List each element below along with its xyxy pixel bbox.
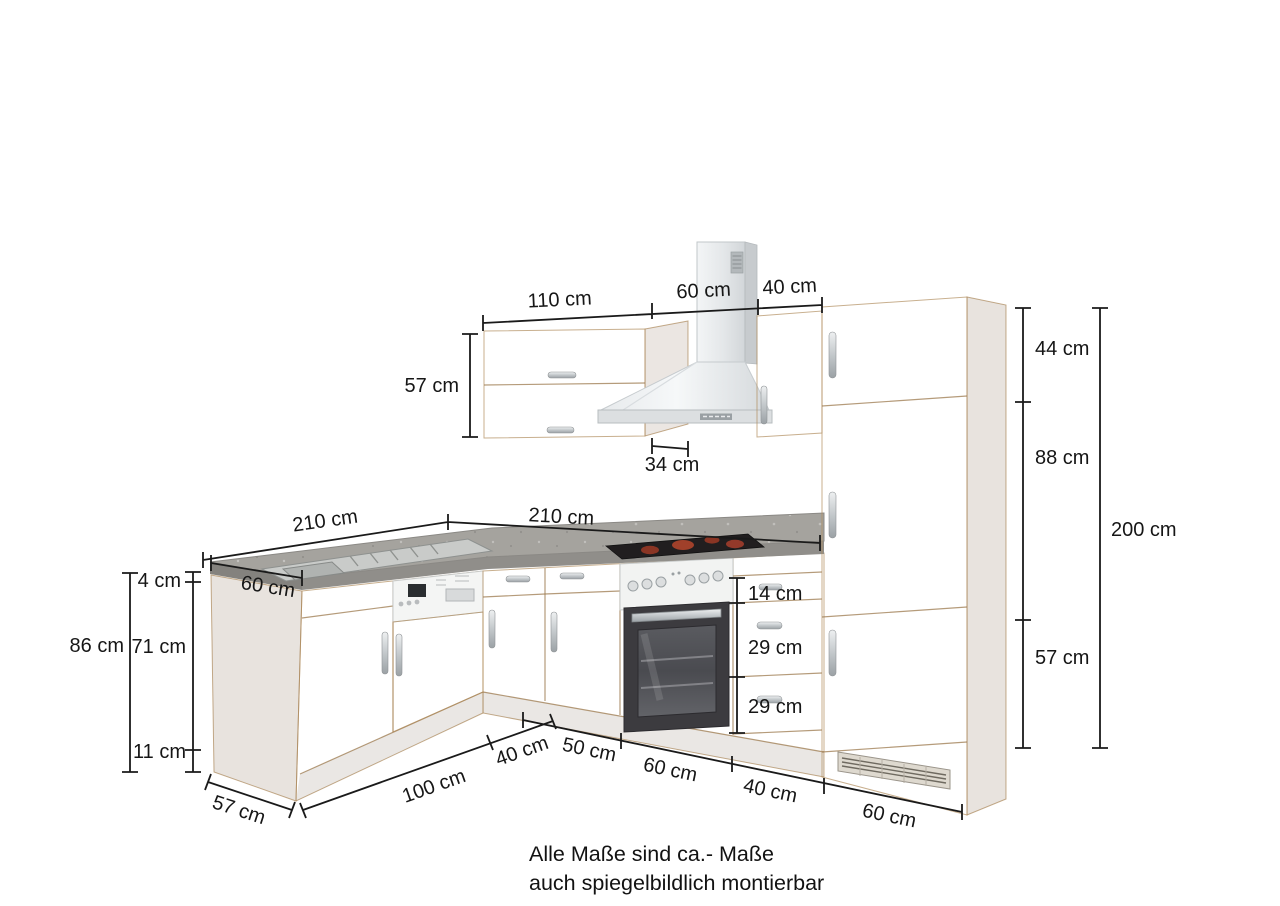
left-run-side-shade (211, 575, 302, 801)
oven (620, 558, 733, 732)
dim-label-wall-depth: 34 cm (645, 454, 699, 476)
dim-label-counter-left: 210 cm (291, 506, 359, 537)
dishwasher-display (408, 584, 426, 597)
dim-label-drawer1: 14 cm (748, 583, 802, 605)
dim-label-worktop-thickness: 4 cm (138, 570, 181, 592)
corner-drawer-handle (506, 576, 530, 582)
hood-base (598, 410, 772, 423)
dim-label-upper40-width: 40 cm (762, 275, 818, 300)
dim-label-bottom-40l: 40 cm (493, 732, 552, 771)
hood-chimney-side (745, 242, 757, 364)
dim-label-plinth-height: 11 cm (133, 741, 186, 763)
dim-label-bottom-40r: 40 cm (741, 775, 799, 808)
tall-door2-handle (829, 492, 836, 538)
dim-label-door-height: 71 cm (132, 636, 186, 658)
dishwasher-handle (396, 634, 402, 676)
dim-left-heights: 86 cm 4 cm 71 cm 11 cm (70, 570, 201, 772)
cab50-door-handle (551, 612, 557, 652)
dim-label-bottom-60a: 60 cm (641, 754, 699, 787)
dim-label-tall-s2: 88 cm (1035, 447, 1089, 469)
footer-line1: Alle Maße sind ca.- Maße (529, 842, 774, 866)
footer-note: Alle Maße sind ca.- Maße auch spiegelbil… (529, 842, 824, 895)
dim-label-bottom-60b: 60 cm (860, 800, 918, 833)
hood-vent-grille (731, 252, 743, 273)
tall-cabinet-front (822, 297, 967, 815)
corner-door-handle (489, 610, 495, 648)
burner (641, 546, 659, 554)
tall-door1-handle (829, 332, 836, 378)
burner (672, 540, 694, 550)
dim-tall-sections: 44 cm 88 cm 57 cm 200 cm (1015, 308, 1177, 748)
cab50-drawer-handle (560, 573, 584, 579)
diagram-canvas: 110 cm 60 cm 40 cm 57 cm 34 cm 44 cm 88 … (0, 0, 1280, 906)
dim-label-tall-s1: 44 cm (1035, 338, 1089, 360)
hood-controls (700, 414, 732, 421)
wall-flap-handle-top (548, 372, 576, 378)
dim-label-wall-height: 57 cm (405, 375, 459, 397)
dim-label-tall-s3: 57 cm (1035, 647, 1089, 669)
burner (726, 540, 744, 548)
dim-label-drawer3: 29 cm (748, 696, 802, 718)
fridge-vent-grille (838, 752, 950, 789)
kitchen-dimension-diagram: 110 cm 60 cm 40 cm 57 cm 34 cm 44 cm 88 … (0, 0, 1280, 906)
dim-label-bottom-depth: 57 cm (210, 791, 269, 829)
dim-label-counter-right: 210 cm (528, 504, 595, 529)
dim-drawer-heights: 14 cm 29 cm 29 cm (729, 578, 802, 733)
footer-line2: auch spiegelbildlich montierbar (529, 871, 824, 895)
sink-door-handle (382, 632, 388, 674)
dim-label-base-height: 86 cm (70, 635, 124, 657)
dishwasher-vent (446, 589, 474, 601)
tall-door3-handle (829, 630, 836, 676)
dim-label-tall-total: 200 cm (1111, 519, 1177, 541)
base-cabinets-left-run (211, 571, 483, 801)
dim-top-widths: 110 cm 60 cm 40 cm (483, 275, 822, 331)
tall-cabinet (822, 297, 1006, 815)
upper-cabinet-40-handle (761, 386, 767, 424)
dim-label-wall-width: 110 cm (527, 287, 592, 312)
wall-flap-handle-bottom (547, 427, 574, 433)
drawer2-handle (757, 622, 782, 629)
upper-cabinet-40 (757, 311, 822, 437)
dim-label-hood-width: 60 cm (676, 279, 732, 304)
dim-label-drawer2: 29 cm (748, 637, 802, 659)
